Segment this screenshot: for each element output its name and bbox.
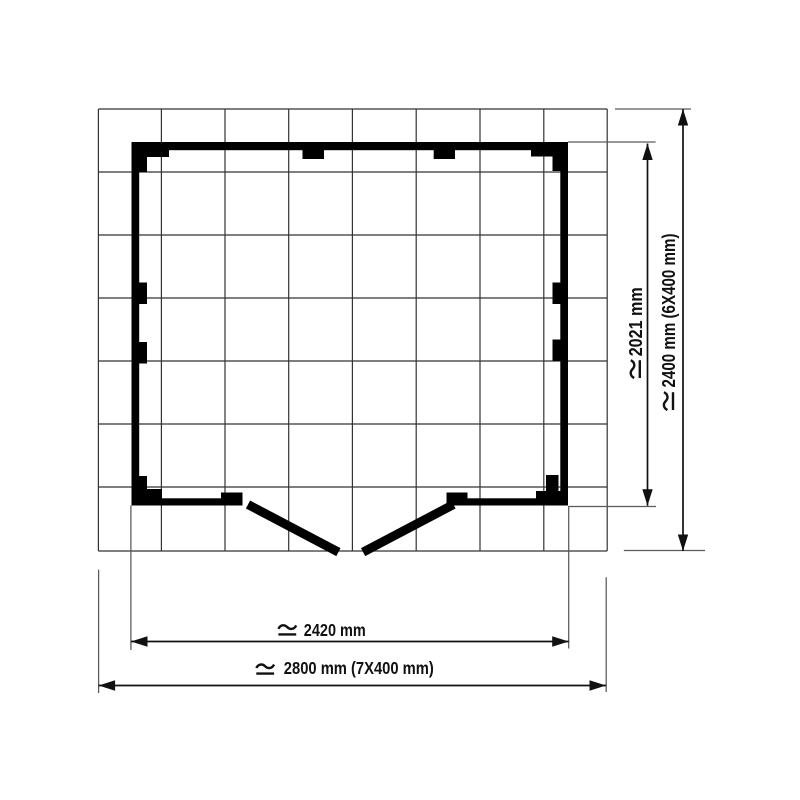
svg-text:2021 mm: 2021 mm (626, 287, 646, 356)
svg-text:2400 mm (6X400 mm): 2400 mm (6X400 mm) (659, 234, 679, 388)
svg-text:2800 mm (7X400 mm): 2800 mm (7X400 mm) (284, 658, 434, 678)
svg-text:2420 mm: 2420 mm (304, 620, 366, 640)
